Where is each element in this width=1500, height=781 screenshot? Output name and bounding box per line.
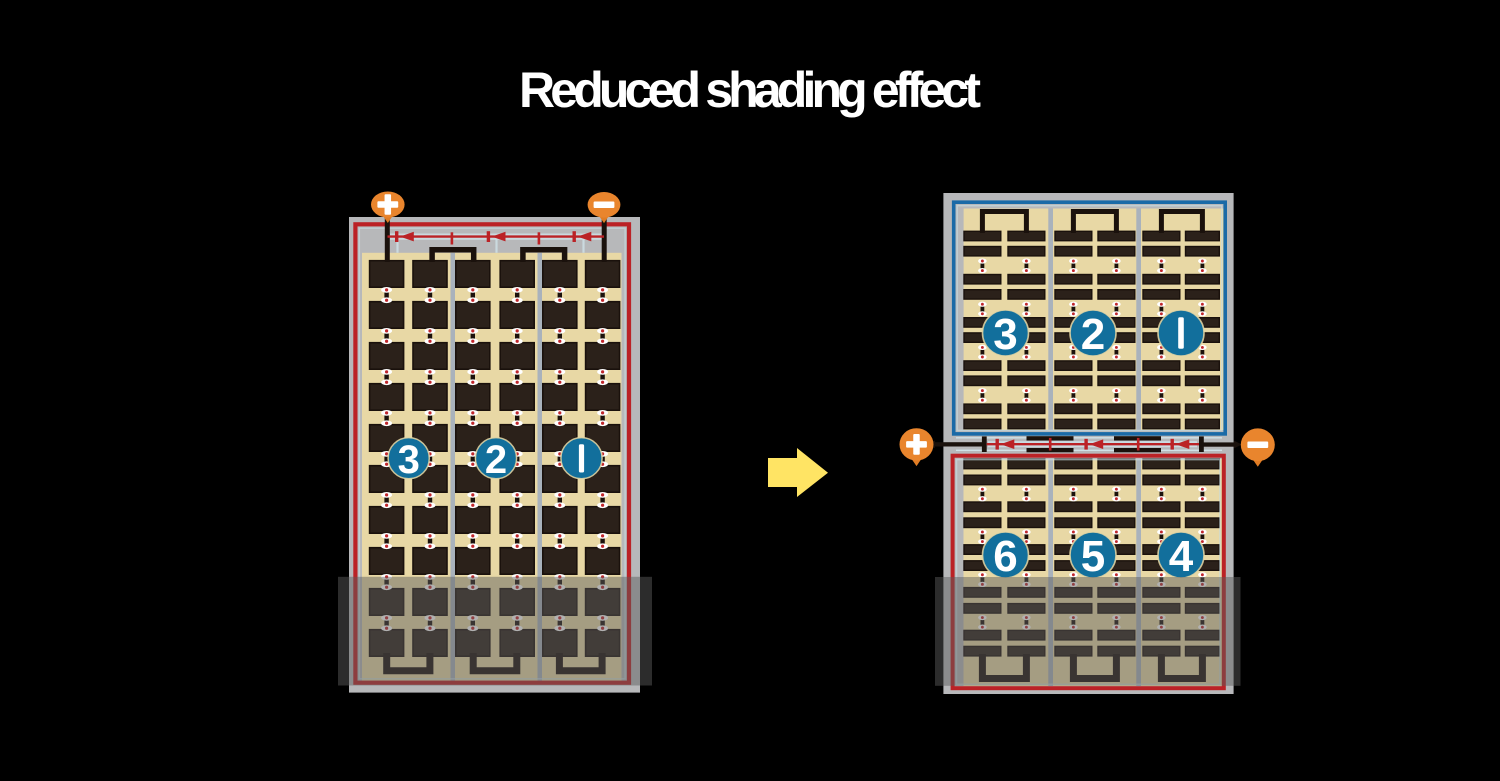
svg-text:5: 5 <box>1081 532 1105 581</box>
svg-text:2: 2 <box>485 438 507 482</box>
svg-text:3: 3 <box>398 438 420 482</box>
svg-text:2: 2 <box>1081 310 1105 359</box>
svg-text:4: 4 <box>1169 532 1194 581</box>
svg-text:Reduced shading effect: Reduced shading effect <box>519 62 981 118</box>
svg-text:3: 3 <box>993 310 1017 359</box>
svg-text:6: 6 <box>993 532 1017 581</box>
